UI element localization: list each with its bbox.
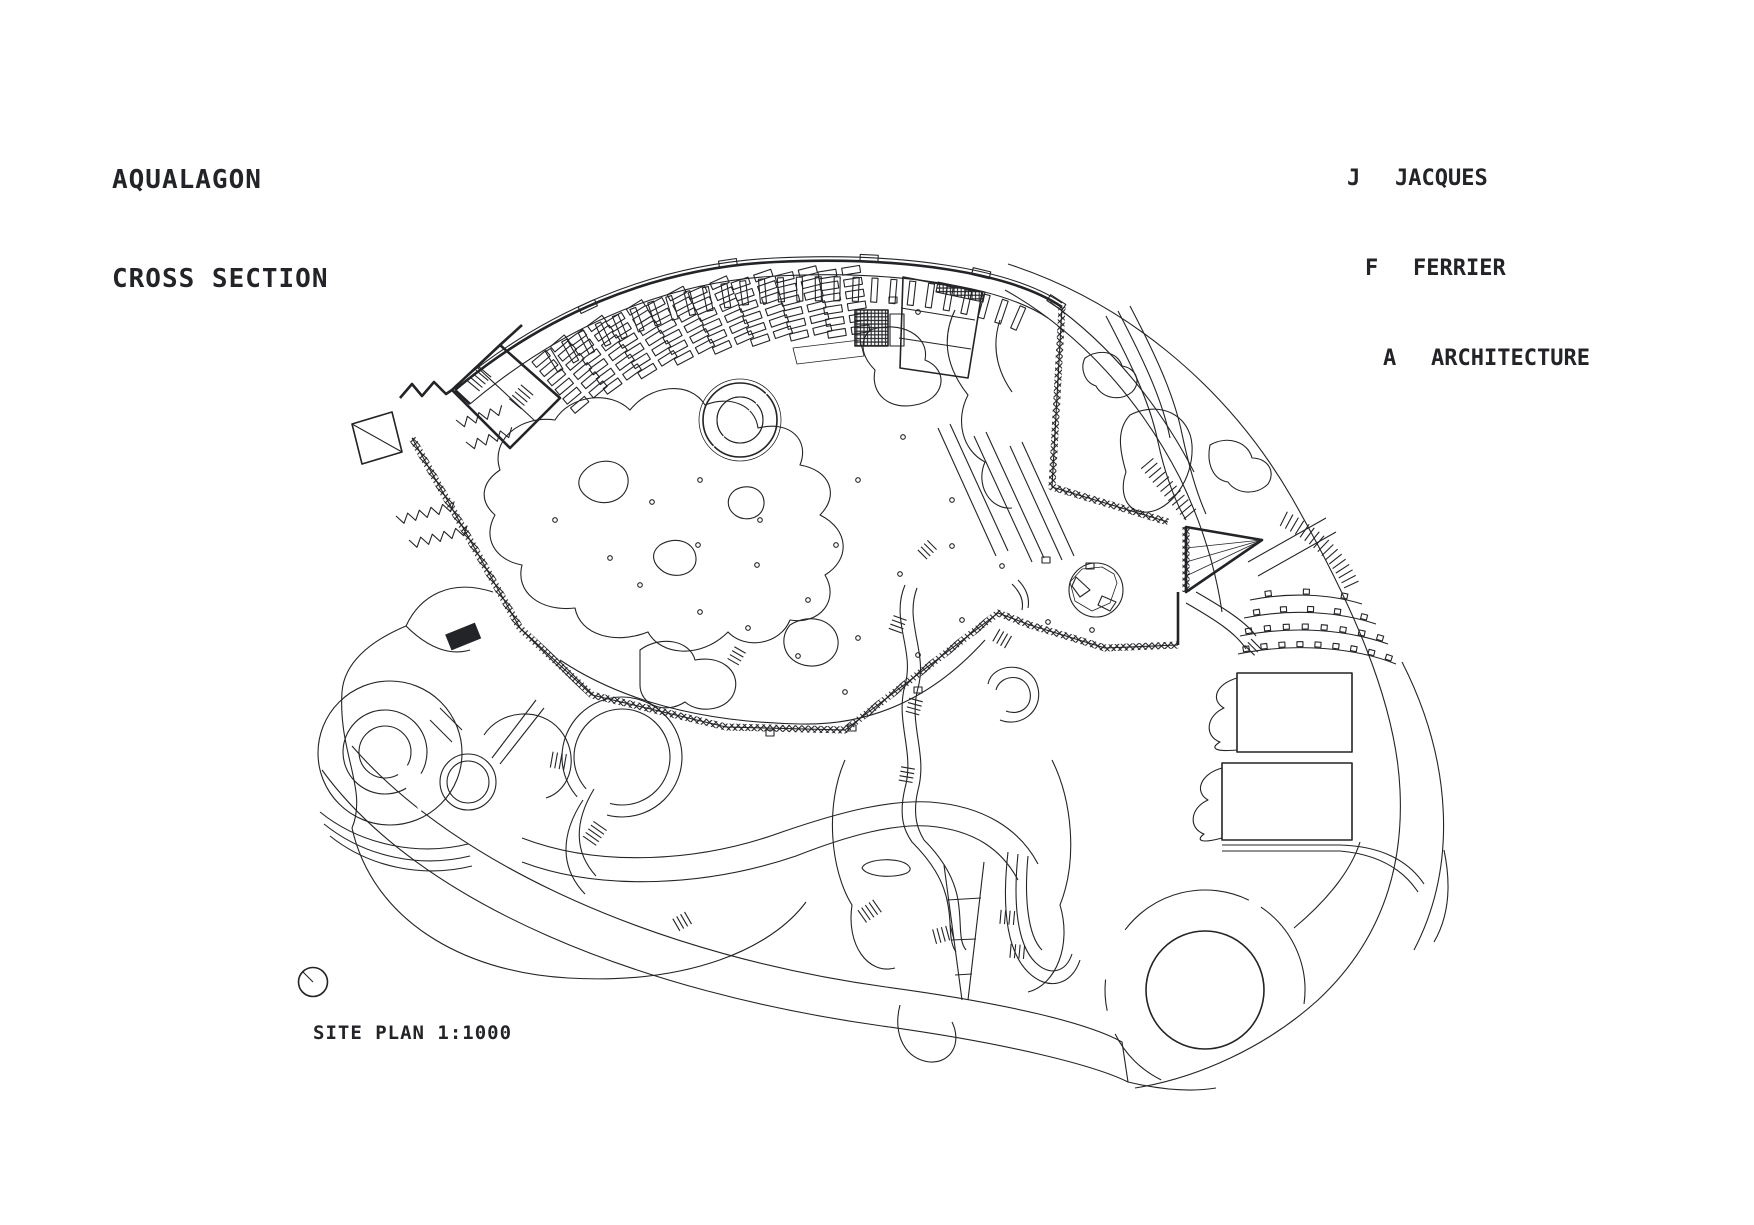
drawing-sheet: AQUALAGON CROSS SECTION JJACQUES FFERRIE… <box>0 0 1754 1225</box>
volcano-pool <box>699 379 781 461</box>
east-wing <box>855 277 1168 522</box>
north-indicator <box>299 968 328 997</box>
left-wing <box>352 325 560 650</box>
site-plan-drawing <box>0 0 1754 1225</box>
amphitheater-terraces <box>1238 595 1396 664</box>
slide-tower-cluster <box>832 585 1080 1062</box>
ring-walkway <box>1105 890 1305 1080</box>
lagoon-pools <box>484 310 1012 709</box>
beach-crescent <box>322 746 1216 1090</box>
fan-staircase <box>1280 512 1358 588</box>
round-pool <box>1146 931 1264 1049</box>
site-boundary <box>342 264 1448 1088</box>
south-facade <box>412 438 1178 730</box>
round-stage <box>1012 563 1123 617</box>
sunbed-rows <box>532 265 870 413</box>
stair-zigzags <box>396 405 514 549</box>
outdoor-pools <box>1193 673 1352 841</box>
north-needle <box>303 972 314 983</box>
